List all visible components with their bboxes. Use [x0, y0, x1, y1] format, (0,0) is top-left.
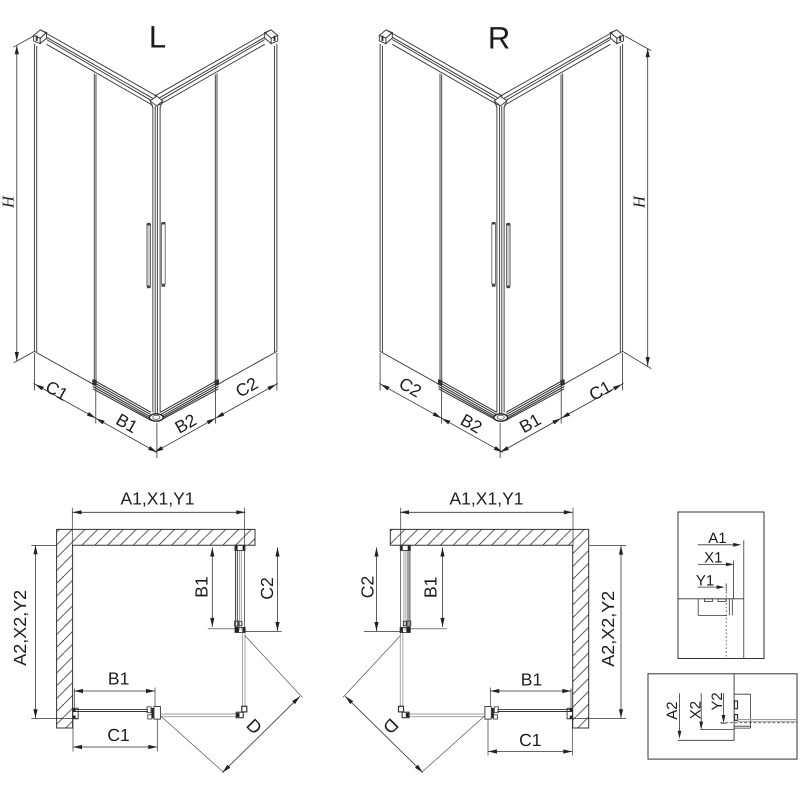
svg-text:B1: B1 — [192, 576, 212, 597]
svg-text:X2: X2 — [687, 701, 704, 719]
svg-text:B1: B1 — [420, 577, 440, 598]
svg-text:B1: B1 — [108, 669, 129, 689]
svg-text:R: R — [488, 21, 510, 56]
svg-text:C1: C1 — [519, 730, 541, 750]
svg-text:X1: X1 — [704, 549, 722, 566]
svg-text:H: H — [0, 195, 18, 209]
svg-text:A2: A2 — [664, 701, 681, 719]
svg-text:C2: C2 — [357, 576, 377, 598]
svg-text:C2: C2 — [257, 577, 277, 599]
svg-text:C1: C1 — [107, 725, 129, 745]
svg-text:B1: B1 — [521, 670, 542, 690]
svg-text:H: H — [630, 195, 649, 209]
svg-text:A1,X1,Y1: A1,X1,Y1 — [450, 489, 524, 509]
svg-text:A1,X1,Y1: A1,X1,Y1 — [121, 489, 195, 509]
svg-text:L: L — [149, 20, 166, 55]
svg-text:A2,X2,Y2: A2,X2,Y2 — [10, 590, 30, 666]
svg-text:A2,X2,Y2: A2,X2,Y2 — [598, 591, 618, 667]
